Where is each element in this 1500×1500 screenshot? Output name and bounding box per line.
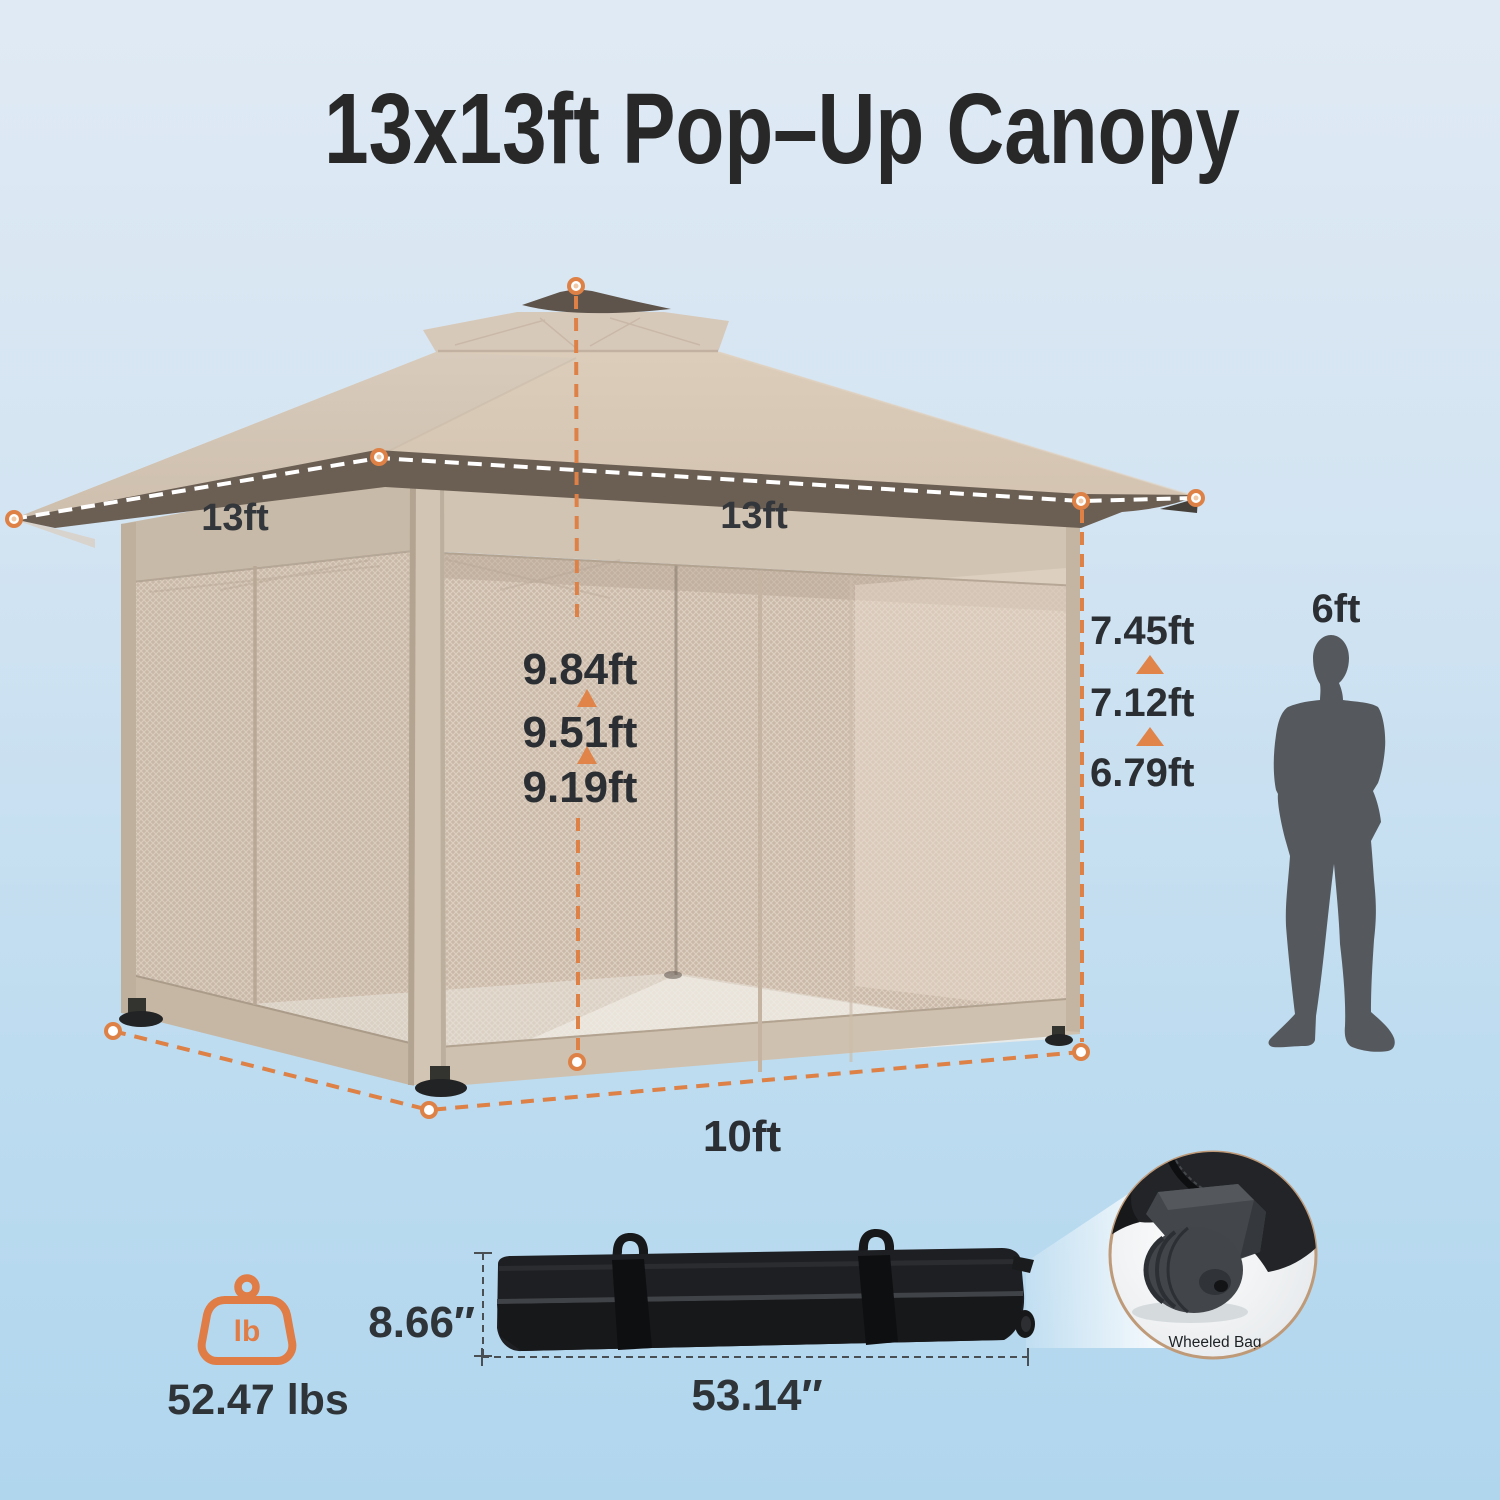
svg-text:7.12ft: 7.12ft <box>1090 681 1195 725</box>
svg-text:6ft: 6ft <box>1312 587 1361 631</box>
svg-text:53.14″: 53.14″ <box>691 1371 822 1420</box>
svg-text:9.84ft: 9.84ft <box>523 645 638 694</box>
svg-text:13ft: 13ft <box>720 495 788 537</box>
svg-text:7.45ft: 7.45ft <box>1090 609 1195 653</box>
svg-text:6.79ft: 6.79ft <box>1090 751 1195 795</box>
svg-text:9.19ft: 9.19ft <box>523 763 638 812</box>
svg-text:13x13ft Pop–Up Canopy: 13x13ft Pop–Up Canopy <box>324 74 1240 186</box>
svg-text:9.51ft: 9.51ft <box>523 708 638 757</box>
svg-text:13ft: 13ft <box>201 497 269 539</box>
svg-text:10ft: 10ft <box>703 1112 782 1161</box>
svg-text:52.47 lbs: 52.47 lbs <box>167 1376 349 1424</box>
svg-text:8.66″: 8.66″ <box>368 1298 475 1347</box>
svg-text:lb: lb <box>234 1315 261 1348</box>
svg-text:Wheeled Bag: Wheeled Bag <box>1168 1334 1261 1351</box>
